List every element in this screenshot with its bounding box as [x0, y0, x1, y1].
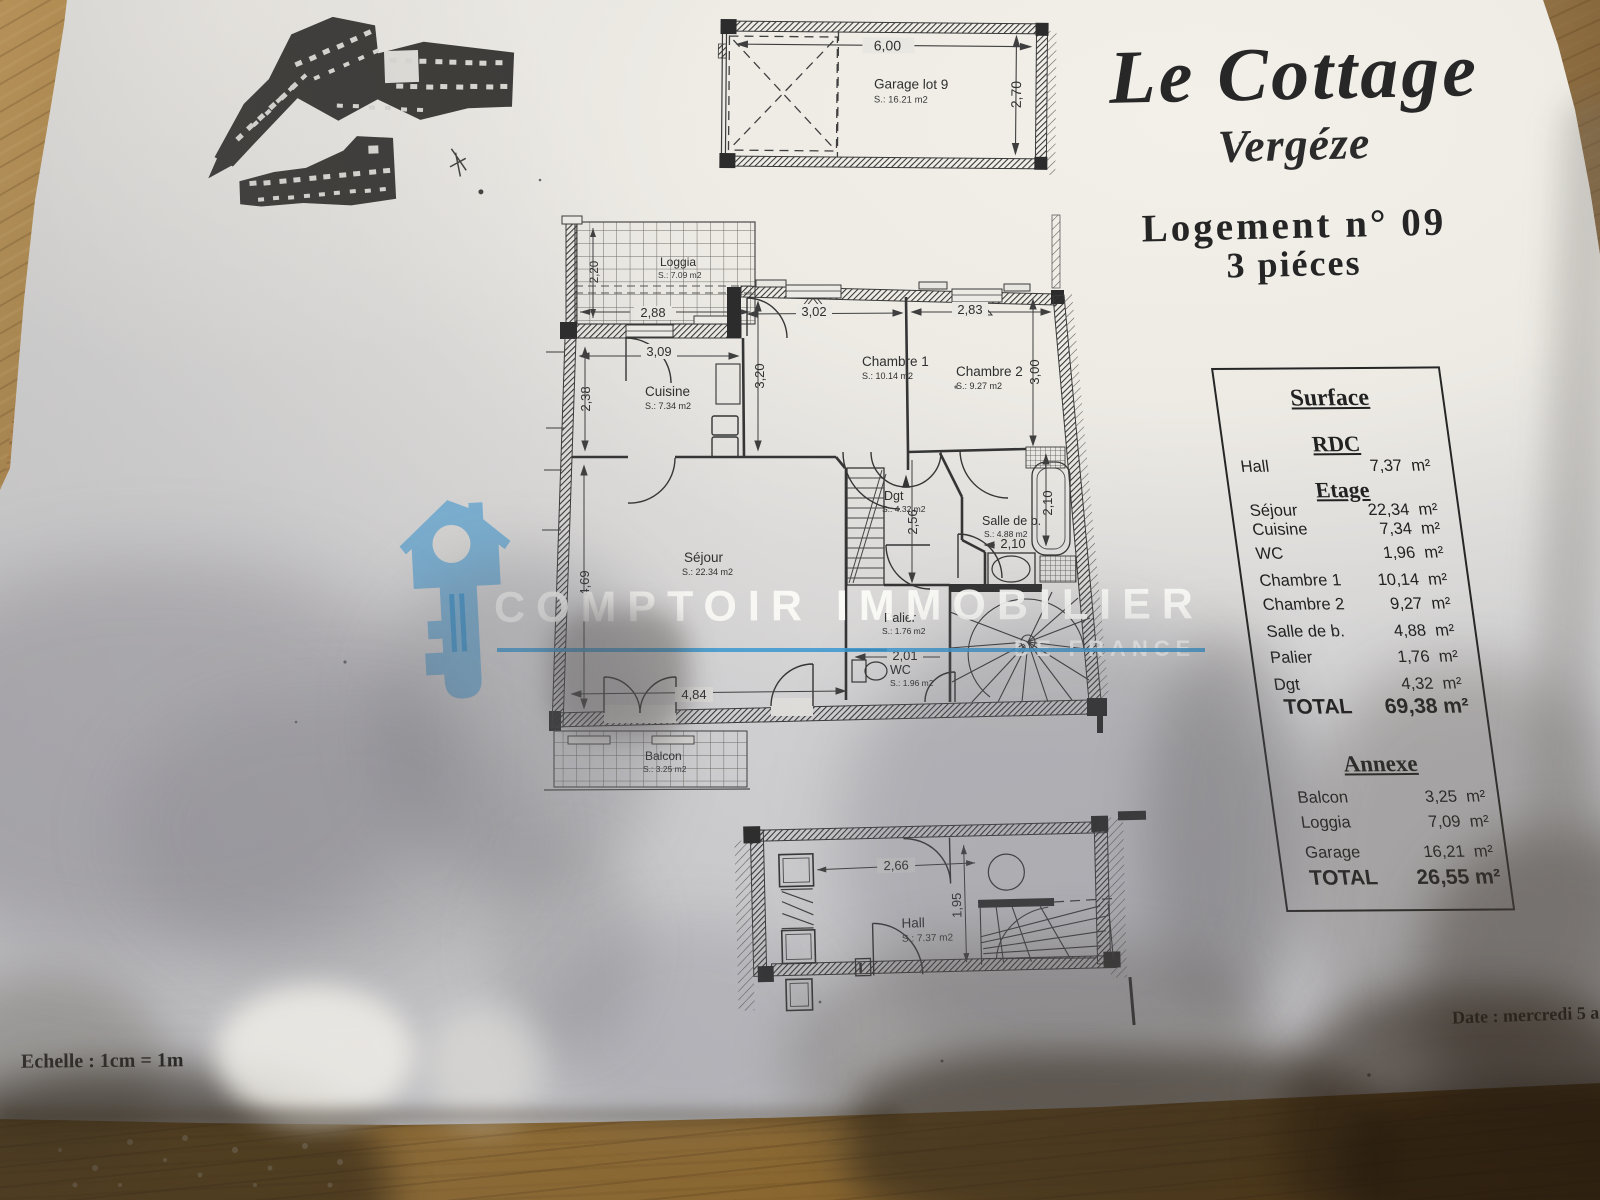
svg-text:S.: 10.14 m2: S.: 10.14 m2	[862, 371, 913, 381]
svg-text:Salle de b.: Salle de b.	[982, 514, 1041, 528]
svg-text:Chambre 2: Chambre 2	[956, 364, 1023, 379]
svg-text:Séjour: Séjour	[684, 550, 724, 565]
svg-text:2,10: 2,10	[1040, 490, 1055, 515]
svg-text:6,00: 6,00	[874, 37, 902, 53]
svg-text:S.: 16.21 m2: S.: 16.21 m2	[874, 94, 928, 105]
svg-text:2,20: 2,20	[589, 261, 601, 283]
svg-text:Chambre 1: Chambre 1	[862, 354, 929, 369]
svg-text:Loggia: Loggia	[660, 255, 696, 269]
svg-text:S.: 4.32 m2: S.: 4.32 m2	[882, 504, 926, 514]
svg-text:Dgt: Dgt	[884, 489, 904, 503]
svg-text:Garage lot 9: Garage lot 9	[874, 76, 948, 92]
svg-text:WC: WC	[890, 663, 911, 677]
svg-text:2,38: 2,38	[578, 386, 593, 411]
svg-text:S.: 22.34 m2: S.: 22.34 m2	[682, 567, 733, 577]
svg-text:S.: 7.34 m2: S.: 7.34 m2	[645, 401, 691, 411]
svg-text:S.: 7.37 m2: S.: 7.37 m2	[902, 932, 954, 944]
svg-text:3,09: 3,09	[646, 344, 671, 359]
svg-text:2,70: 2,70	[1008, 81, 1024, 109]
svg-text:2,66: 2,66	[883, 858, 909, 874]
svg-text:S.: 1.96 m2: S.: 1.96 m2	[890, 678, 934, 688]
svg-text:Balcon: Balcon	[645, 749, 682, 763]
svg-text:3,00: 3,00	[1027, 359, 1042, 384]
svg-text:S.: 7.09 m2: S.: 7.09 m2	[658, 270, 702, 280]
svg-text:S.: 3.25 m2: S.: 3.25 m2	[643, 764, 687, 774]
svg-text:2,83: 2,83	[957, 302, 982, 317]
svg-text:4,84: 4,84	[681, 687, 706, 702]
svg-text:3,02: 3,02	[801, 304, 826, 319]
svg-text:Hall: Hall	[901, 915, 925, 931]
svg-text:3,20: 3,20	[752, 363, 767, 388]
svg-text:2,88: 2,88	[640, 305, 665, 320]
svg-text:1,95: 1,95	[949, 893, 965, 919]
svg-text:S.: 9.27 m2: S.: 9.27 m2	[956, 381, 1002, 391]
svg-text:Cuisine: Cuisine	[645, 384, 690, 399]
svg-text:S.: 4.88 m2: S.: 4.88 m2	[984, 529, 1028, 539]
